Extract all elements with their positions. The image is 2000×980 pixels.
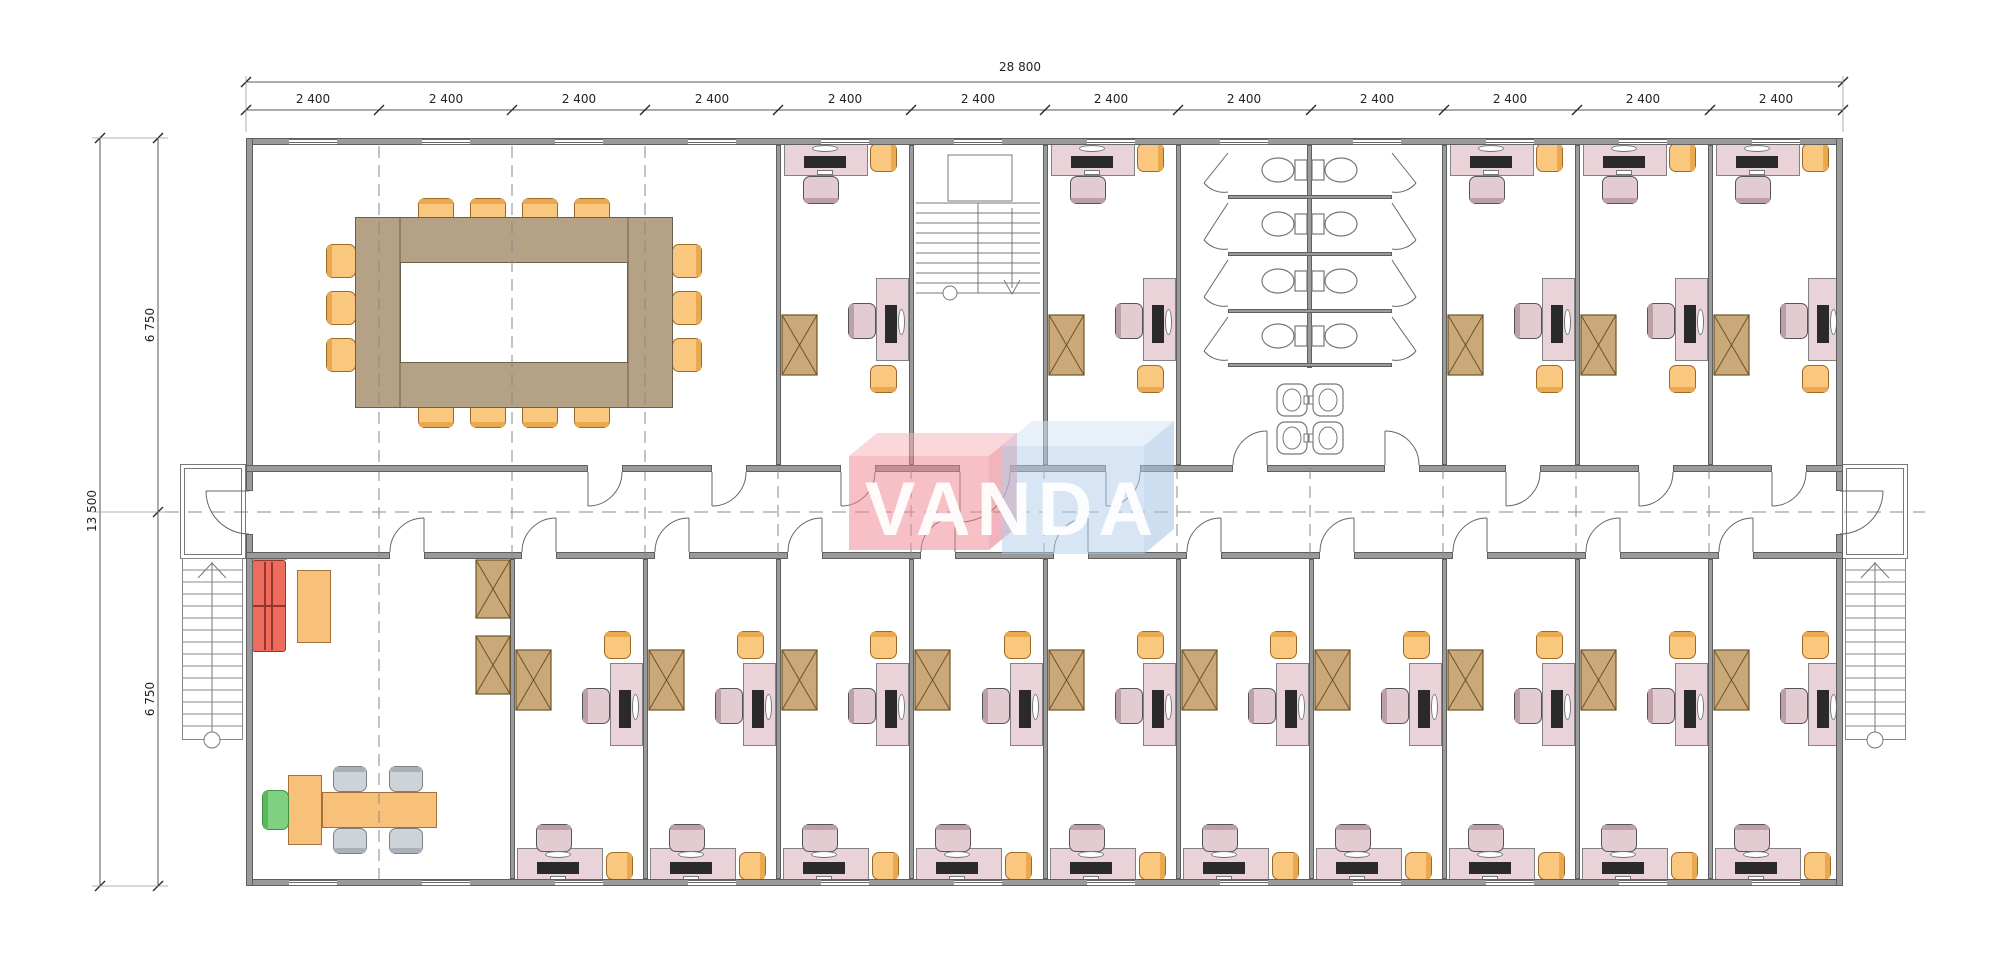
- guest-chair: [739, 852, 766, 880]
- guest-chair: [737, 631, 764, 659]
- wall: [1228, 195, 1392, 199]
- dim-label-left-total: 13 500: [85, 481, 99, 541]
- sink-basin: [1283, 427, 1301, 449]
- watermark-text: VANDA: [846, 466, 1178, 553]
- office-chair-back: [1336, 825, 1370, 830]
- office-chair: [1514, 303, 1542, 339]
- cabinet: [1049, 315, 1084, 375]
- guest-chair: [870, 631, 897, 659]
- office-chair-back: [1603, 198, 1637, 203]
- office-chair-back: [849, 304, 854, 338]
- wall: [1575, 559, 1580, 879]
- office-chair: [1780, 303, 1808, 339]
- dimension-tick: [1040, 105, 1050, 115]
- toilet-tank: [1295, 214, 1307, 234]
- guest-chair-back: [1138, 632, 1163, 637]
- dimension-tick: [95, 881, 105, 891]
- guest-chair-back: [575, 199, 609, 204]
- office-chair: [1115, 688, 1143, 724]
- office-chair-back: [1736, 198, 1770, 203]
- office-chair-back: [1515, 304, 1520, 338]
- office-chair: [715, 688, 743, 724]
- computer-monitor: [1336, 862, 1378, 874]
- computer-monitor: [1285, 690, 1297, 728]
- wall: [1221, 552, 1320, 559]
- toilet-bowl: [1325, 212, 1357, 236]
- guest-chair: [870, 143, 897, 172]
- toilet-tank: [1295, 160, 1307, 180]
- computer-monitor: [1152, 690, 1164, 728]
- sink: [1277, 384, 1307, 416]
- exterior-staircase: [182, 558, 243, 740]
- sink-basin: [1283, 389, 1301, 411]
- desk-tray: [1431, 694, 1438, 720]
- office-chair: [1602, 176, 1638, 204]
- computer-monitor: [804, 156, 846, 168]
- toilet-bowl: [1325, 269, 1357, 293]
- guest-chair: [1669, 143, 1696, 172]
- office-chair-back: [537, 825, 571, 830]
- guest-chair-back: [1559, 853, 1564, 879]
- dimension-tick: [1838, 105, 1848, 115]
- office-chair: [848, 303, 876, 339]
- wall: [1088, 552, 1187, 559]
- window: [688, 880, 736, 886]
- door-swing: [1187, 518, 1221, 552]
- guest-chair-back: [1537, 387, 1562, 392]
- guest-chair-back: [327, 292, 332, 324]
- dimension-tick: [374, 105, 384, 115]
- computer-monitor: [1684, 690, 1696, 728]
- window: [422, 880, 470, 886]
- cabinet: [1315, 650, 1350, 710]
- guest-chair-back: [891, 144, 896, 171]
- toilet-bowl: [1325, 324, 1357, 348]
- computer-monitor: [1735, 862, 1777, 874]
- office-chair: [1335, 824, 1371, 852]
- dimension-tick: [1705, 105, 1715, 115]
- cabinet-x: [1448, 315, 1483, 375]
- cabinet-x: [1448, 315, 1483, 375]
- office-chair: [1115, 303, 1143, 339]
- desk-tray: [1697, 309, 1704, 335]
- guest-chair: [1139, 852, 1166, 880]
- window: [1220, 139, 1268, 145]
- door-swing: [655, 518, 689, 552]
- wall: [689, 552, 788, 559]
- guest-chair-back: [1690, 144, 1695, 171]
- guest-chair: [1536, 631, 1563, 659]
- office-chair-back: [1602, 825, 1636, 830]
- guest-chair: [1405, 852, 1432, 880]
- door-swing: [788, 518, 822, 552]
- wall: [1806, 465, 1843, 472]
- door-swing: [1385, 431, 1419, 465]
- cabinet: [1714, 315, 1749, 375]
- visitor-chair-back: [390, 848, 422, 853]
- guest-chair-back: [1138, 387, 1163, 392]
- dim-label-top-seg-4: 2 400: [815, 92, 875, 106]
- desk-tray: [944, 851, 970, 858]
- cabinet-x: [476, 560, 510, 618]
- wall: [643, 559, 648, 879]
- stall-door-leaf: [1392, 317, 1416, 351]
- guest-chair-back: [760, 853, 765, 879]
- cabinet-x: [782, 650, 817, 710]
- desk-tray: [812, 145, 838, 152]
- wall: [246, 138, 253, 491]
- guest-chair-back: [605, 632, 630, 637]
- window: [954, 139, 1002, 145]
- guest-chair: [1270, 631, 1297, 659]
- dim-label-top-seg-6: 2 400: [1081, 92, 1141, 106]
- guest-chair-back: [1825, 853, 1830, 879]
- wall: [424, 552, 522, 559]
- computer-monitor: [1817, 690, 1829, 728]
- computer-monitor: [537, 862, 579, 874]
- cabinet-x: [782, 650, 817, 710]
- computer-monitor: [1152, 305, 1164, 343]
- office-chair-back: [1249, 689, 1254, 723]
- cabinet-x: [1049, 650, 1084, 710]
- manager-chair: [262, 790, 289, 830]
- dimension-tick: [906, 105, 916, 115]
- stall-door-leaf: [1392, 203, 1416, 240]
- wall: [1176, 559, 1181, 879]
- guest-chair-back: [1271, 632, 1296, 637]
- wall: [1228, 252, 1392, 256]
- cabinet-x: [649, 650, 684, 710]
- guest-chair-back: [738, 632, 763, 637]
- computer-monitor: [1551, 690, 1563, 728]
- stall-door-swing: [1392, 240, 1416, 249]
- office-chair-back: [804, 198, 838, 203]
- guest-chair: [326, 338, 356, 372]
- dimension-tick: [640, 105, 650, 115]
- guest-chair: [1536, 365, 1563, 393]
- wall: [1575, 145, 1580, 465]
- computer-monitor: [936, 862, 978, 874]
- guest-chair: [1137, 365, 1164, 393]
- cabinet-x: [649, 650, 684, 710]
- desk-tray: [1564, 694, 1571, 720]
- guest-chair: [1403, 631, 1430, 659]
- wall: [1753, 552, 1843, 559]
- cabinet-x: [516, 650, 551, 710]
- guest-chair-back: [1557, 144, 1562, 171]
- window: [1220, 880, 1268, 886]
- cabinet: [782, 650, 817, 710]
- computer-monitor: [803, 862, 845, 874]
- computer-monitor: [1603, 156, 1645, 168]
- guest-chair: [1802, 631, 1829, 659]
- office-chair-back: [1648, 689, 1653, 723]
- desk-tray: [1564, 309, 1571, 335]
- desk-tray: [1211, 851, 1237, 858]
- office-chair-back: [1116, 689, 1121, 723]
- guest-chair-back: [419, 199, 453, 204]
- guest-chair-back: [1426, 853, 1431, 879]
- guest-chair: [672, 244, 702, 278]
- office-chair-back: [1470, 198, 1504, 203]
- reception-desk: [288, 775, 322, 845]
- stair-down-arrow: [1004, 280, 1020, 294]
- guest-chair-back: [1823, 144, 1828, 171]
- guest-chair-back: [1026, 853, 1031, 879]
- toilet-tank: [1312, 326, 1324, 346]
- window: [1486, 139, 1534, 145]
- desk-tray: [1743, 851, 1769, 858]
- guest-chair-back: [627, 853, 632, 879]
- stall-door-leaf: [1392, 153, 1416, 183]
- office-chair-back: [1781, 689, 1786, 723]
- office-chair: [1381, 688, 1409, 724]
- office-chair: [982, 688, 1010, 724]
- window: [1619, 880, 1667, 886]
- cabinet-x: [476, 636, 510, 694]
- cabinet-x: [1448, 650, 1483, 710]
- office-chair: [802, 824, 838, 852]
- cabinet-x: [1714, 650, 1749, 710]
- guest-chair: [1137, 143, 1164, 172]
- toilet-bowl: [1262, 212, 1294, 236]
- office-chair: [1202, 824, 1238, 852]
- guest-chair: [326, 244, 356, 278]
- dimension-tick: [153, 881, 163, 891]
- dim-label-top-seg-1: 2 400: [416, 92, 476, 106]
- window: [1486, 880, 1534, 886]
- guest-chair: [1804, 852, 1831, 880]
- guest-chair: [1669, 365, 1696, 393]
- sink: [1277, 422, 1307, 454]
- wall: [246, 138, 1843, 145]
- dim-label-top-seg-10: 2 400: [1613, 92, 1673, 106]
- guest-chair-back: [523, 422, 557, 427]
- door-swing: [1772, 472, 1806, 506]
- window: [1087, 139, 1135, 145]
- wall: [246, 465, 588, 472]
- office-chair: [803, 176, 839, 204]
- door-swing: [390, 518, 424, 552]
- sink-tap: [1304, 434, 1308, 442]
- office-chair-back: [1070, 825, 1104, 830]
- door-swing: [1320, 518, 1354, 552]
- computer-monitor: [1602, 862, 1644, 874]
- sink: [1313, 422, 1343, 454]
- wall: [1228, 309, 1392, 313]
- dim-label-left-seg-0: 6 750: [143, 295, 157, 355]
- computer-monitor: [1551, 305, 1563, 343]
- computer-monitor: [1019, 690, 1031, 728]
- cabinet-x: [1049, 315, 1084, 375]
- window: [1752, 139, 1800, 145]
- door-swing: [1233, 431, 1267, 465]
- office-chair-back: [1469, 825, 1503, 830]
- wall: [246, 534, 253, 886]
- window: [422, 139, 470, 145]
- dimension-tick: [1306, 105, 1316, 115]
- wall: [1836, 534, 1843, 886]
- dim-label-top-seg-11: 2 400: [1746, 92, 1806, 106]
- office-chair-back: [1735, 825, 1769, 830]
- wall: [1043, 559, 1048, 879]
- dimension-tick: [95, 133, 105, 143]
- visitor-chair-back: [334, 767, 366, 772]
- guest-chair: [1004, 631, 1031, 659]
- visitor-chair: [389, 766, 423, 792]
- guest-chair-back: [1160, 853, 1165, 879]
- wall: [1487, 552, 1586, 559]
- cabinet-x: [1448, 650, 1483, 710]
- toilet-tank: [1312, 271, 1324, 291]
- guest-chair-back: [1537, 632, 1562, 637]
- guest-chair-back: [327, 245, 332, 277]
- window: [289, 880, 337, 886]
- window: [555, 880, 603, 886]
- cabinet: [1581, 315, 1616, 375]
- wall: [909, 145, 914, 465]
- cabinet-x: [1049, 650, 1084, 710]
- sink-tap: [1309, 434, 1313, 442]
- desk-tray: [1344, 851, 1370, 858]
- guest-chair-back: [1670, 387, 1695, 392]
- wall: [622, 465, 712, 472]
- guest-chair-back: [1670, 632, 1695, 637]
- window: [954, 880, 1002, 886]
- dimension-tick: [1838, 77, 1848, 87]
- stall-door-swing: [1204, 297, 1228, 306]
- dim-label-top-seg-8: 2 400: [1347, 92, 1407, 106]
- desk-tray: [1165, 694, 1172, 720]
- office-chair-back: [1515, 689, 1520, 723]
- wall: [1419, 465, 1506, 472]
- guest-chair-back: [419, 422, 453, 427]
- office-chair: [536, 824, 572, 852]
- dimension-tick: [1439, 105, 1449, 115]
- wall: [1708, 559, 1713, 879]
- door-swing: [1639, 472, 1673, 506]
- office-chair: [669, 824, 705, 852]
- door-swing: [1586, 518, 1620, 552]
- wall: [909, 559, 914, 879]
- wall: [1267, 465, 1385, 472]
- wall: [1309, 559, 1314, 879]
- desk-tray: [1610, 851, 1636, 858]
- toilet-tank: [1295, 326, 1307, 346]
- visitor-chair: [333, 766, 367, 792]
- cabinet: [915, 650, 950, 710]
- office-chair: [935, 824, 971, 852]
- watermark-blue-box: [1002, 421, 1174, 446]
- cabinet: [1448, 315, 1483, 375]
- cabinet-x: [915, 650, 950, 710]
- stall-door-leaf: [1204, 203, 1228, 240]
- toilet-bowl: [1325, 158, 1357, 182]
- cabinet-x: [1581, 315, 1616, 375]
- computer-monitor: [1203, 862, 1245, 874]
- guest-chair: [1671, 852, 1698, 880]
- computer-monitor: [1470, 156, 1512, 168]
- dim-label-top-seg-2: 2 400: [549, 92, 609, 106]
- office-chair-back: [1382, 689, 1387, 723]
- computer-monitor: [885, 305, 897, 343]
- sink-basin: [1319, 389, 1337, 411]
- stall-door-leaf: [1204, 153, 1228, 183]
- computer-monitor: [1071, 156, 1113, 168]
- guest-chair-back: [1158, 144, 1163, 171]
- stall-door-leaf: [1392, 260, 1416, 297]
- entrance-porch: [184, 468, 242, 555]
- desk-tray: [1079, 145, 1105, 152]
- door-swing: [1506, 472, 1540, 506]
- cabinet-x: [476, 560, 510, 618]
- wall: [822, 552, 921, 559]
- cabinet-x: [1714, 315, 1749, 375]
- office-chair: [1070, 176, 1106, 204]
- computer-monitor: [1070, 862, 1112, 874]
- wall: [1354, 552, 1453, 559]
- window: [1619, 139, 1667, 145]
- cabinet-x: [1182, 650, 1217, 710]
- cabinet: [649, 650, 684, 710]
- office-chair-back: [983, 689, 988, 723]
- wall: [1176, 145, 1181, 465]
- sink-tap: [1309, 396, 1313, 404]
- office-chair-back: [1648, 304, 1653, 338]
- office-chair: [1468, 824, 1504, 852]
- cabinet-x: [1315, 650, 1350, 710]
- cabinet: [516, 650, 551, 710]
- dim-label-top-seg-3: 2 400: [682, 92, 742, 106]
- wall: [1228, 363, 1392, 367]
- stall-door-leaf: [1204, 260, 1228, 297]
- office-chair: [848, 688, 876, 724]
- sink-tap: [1304, 396, 1308, 404]
- office-chair-back: [716, 689, 721, 723]
- keyboard: [817, 170, 833, 175]
- floor-plan-canvas: VANDA 28 800 13 500 6 750 6 750 2 4002 4…: [0, 0, 2000, 980]
- desk-tray: [545, 851, 571, 858]
- cabinet-x: [1581, 650, 1616, 710]
- door-swing: [1719, 518, 1753, 552]
- office-chair-back: [1071, 198, 1105, 203]
- desk-tray: [1478, 145, 1504, 152]
- cabinet: [1049, 650, 1084, 710]
- wall: [1307, 145, 1312, 368]
- guest-chair-back: [1404, 632, 1429, 637]
- wall: [1043, 145, 1048, 465]
- wall: [1620, 552, 1719, 559]
- office-chair-back: [1781, 304, 1786, 338]
- dimension-tick: [153, 133, 163, 143]
- dim-label-top-seg-5: 2 400: [948, 92, 1008, 106]
- guest-chair-back: [1803, 632, 1828, 637]
- cabinet: [476, 636, 510, 694]
- desk-tray: [1078, 851, 1104, 858]
- guest-chair: [1536, 143, 1563, 172]
- wall: [1708, 145, 1713, 465]
- dimension-tick: [1572, 105, 1582, 115]
- office-chair-back: [1116, 304, 1121, 338]
- desk-tray: [1165, 309, 1172, 335]
- conference-table-opening: [400, 262, 628, 363]
- cabinet: [782, 315, 817, 375]
- window: [555, 139, 603, 145]
- toilet-tank: [1295, 271, 1307, 291]
- guest-chair: [1802, 143, 1829, 172]
- window: [688, 139, 736, 145]
- wall: [1673, 465, 1772, 472]
